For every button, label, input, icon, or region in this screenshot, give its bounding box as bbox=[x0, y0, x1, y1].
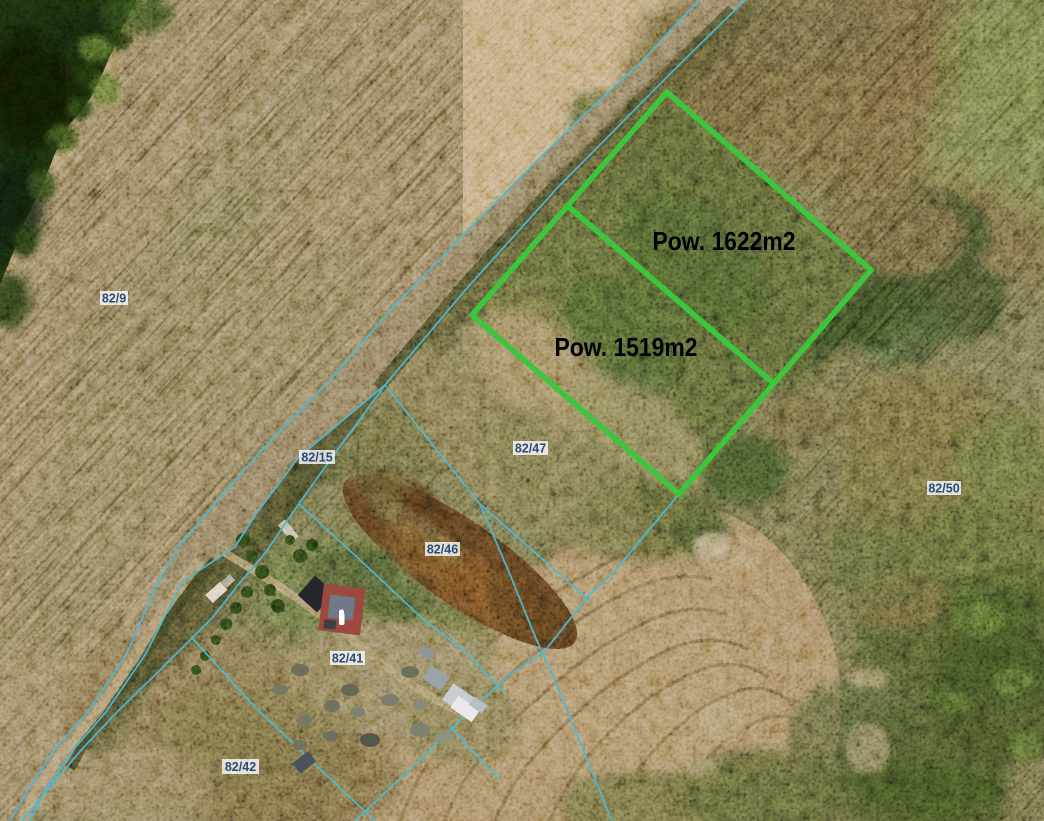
svg-text:82/41: 82/41 bbox=[332, 652, 363, 666]
svg-text:82/47: 82/47 bbox=[515, 442, 546, 456]
svg-text:82/9: 82/9 bbox=[102, 292, 126, 306]
svg-text:Pow. 1519m2: Pow. 1519m2 bbox=[555, 332, 698, 362]
svg-text:82/50: 82/50 bbox=[928, 482, 959, 496]
svg-text:Pow. 1622m2: Pow. 1622m2 bbox=[653, 226, 796, 256]
svg-text:82/46: 82/46 bbox=[427, 543, 458, 557]
svg-text:82/15: 82/15 bbox=[301, 451, 332, 465]
svg-text:82/42: 82/42 bbox=[225, 760, 256, 774]
